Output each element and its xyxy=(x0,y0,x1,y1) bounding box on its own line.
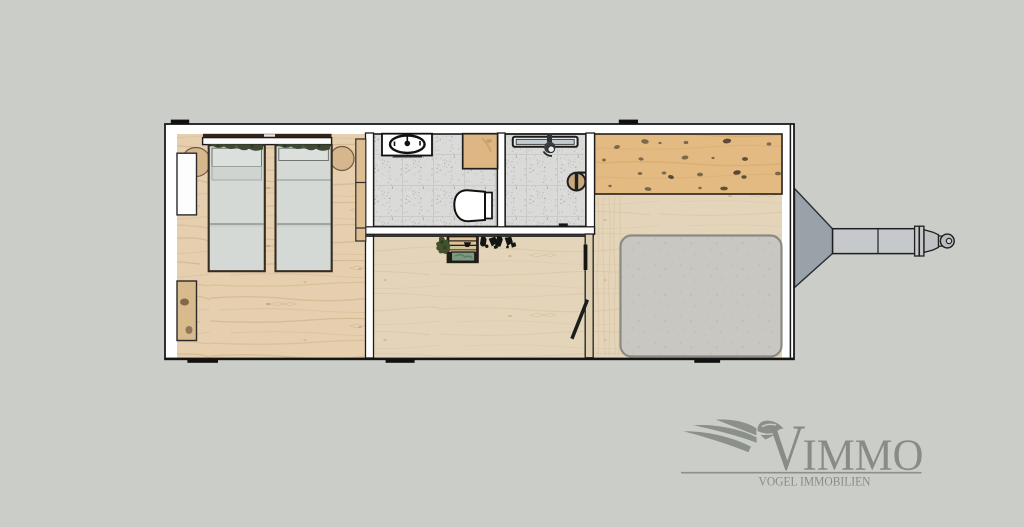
svg-text:VOGEL IMMOBILIEN: VOGEL IMMOBILIEN xyxy=(759,475,871,489)
svg-text:V: V xyxy=(767,412,806,485)
